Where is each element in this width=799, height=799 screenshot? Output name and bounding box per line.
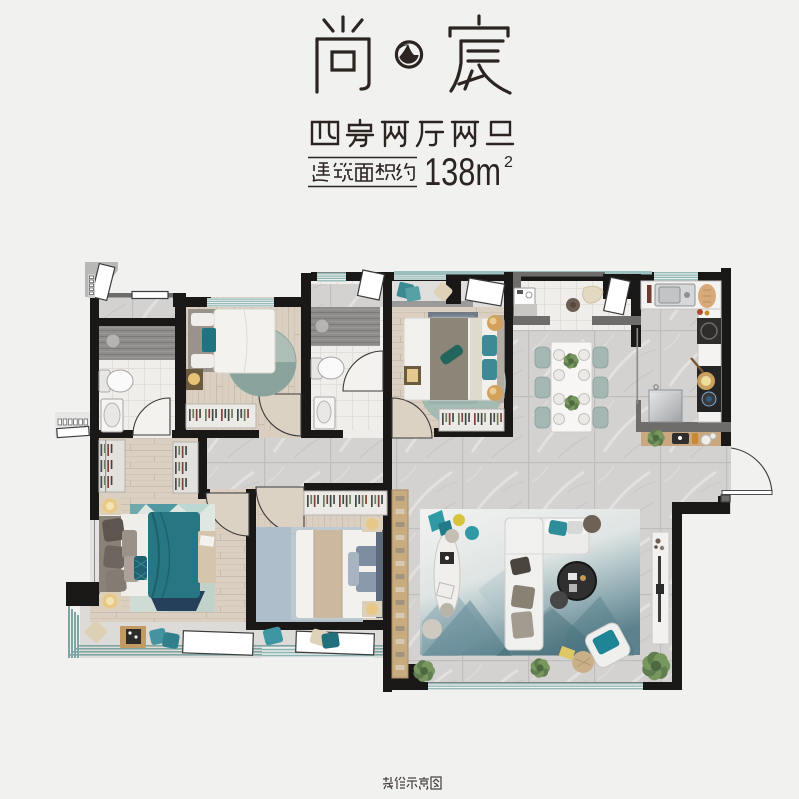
svg-text:2: 2 [504,154,513,171]
svg-text:138m: 138m [424,151,501,194]
